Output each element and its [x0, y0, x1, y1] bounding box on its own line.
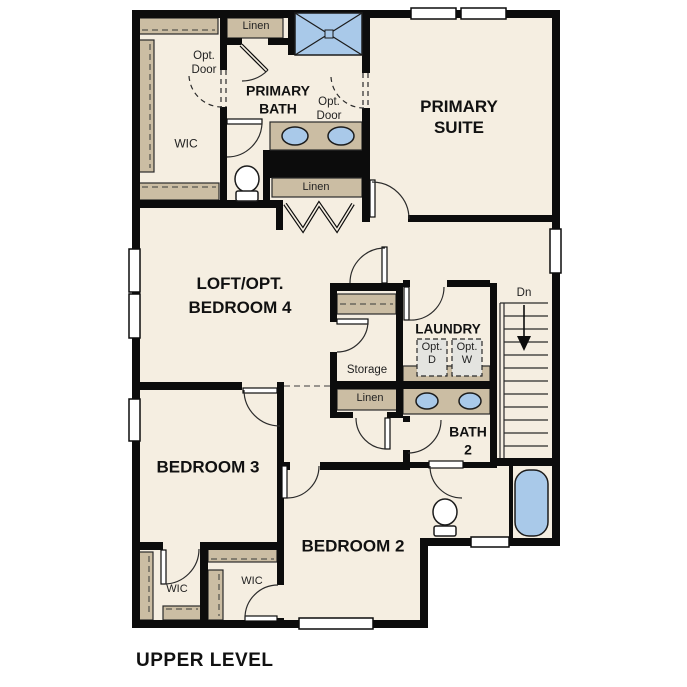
- toilet-icon: [235, 166, 259, 201]
- shower-icon: [295, 13, 362, 55]
- label-loft-bedroom4: LOFT/OPT. BEDROOM 4: [189, 272, 292, 320]
- sink-icon: [416, 393, 438, 409]
- label-opt-washer: Opt. W: [457, 341, 478, 367]
- toilet-icon: [433, 499, 457, 536]
- floorplan-drawing: [0, 0, 687, 687]
- label-linen-hall: Linen: [357, 392, 384, 406]
- plan-title: UPPER LEVEL: [136, 650, 273, 672]
- sink-icon: [328, 127, 354, 145]
- label-opt-door-wic: Opt. Door: [192, 50, 217, 78]
- label-bedroom2: BEDROOM 2: [302, 535, 405, 556]
- floorplan-upper-level: PRIMARY SUITE PRIMARY BATH LOFT/OPT. BED…: [0, 0, 687, 687]
- label-bath2: BATH 2: [449, 424, 487, 459]
- label-wic-bedroom2: WIC: [241, 575, 262, 589]
- label-wic-bedroom3: WIC: [166, 583, 187, 597]
- label-wic-primary: WIC: [174, 137, 197, 152]
- label-linen-bath: Linen: [303, 181, 330, 195]
- label-opt-dryer: Opt. D: [422, 341, 443, 367]
- label-laundry: LAUNDRY: [415, 322, 481, 339]
- sink-icon: [459, 393, 481, 409]
- bathtub-icon: [515, 470, 548, 536]
- label-linen-top: Linen: [243, 20, 270, 34]
- label-storage: Storage: [347, 363, 387, 377]
- label-primary-suite: PRIMARY SUITE: [420, 96, 498, 139]
- label-stairs-dn: Dn: [517, 286, 532, 300]
- primary-bath-tub-block: [270, 150, 362, 178]
- sink-icon: [282, 127, 308, 145]
- label-primary-bath: PRIMARY BATH: [246, 83, 310, 118]
- label-opt-door-bath: Opt. Door: [317, 96, 342, 124]
- label-bedroom3: BEDROOM 3: [157, 456, 260, 477]
